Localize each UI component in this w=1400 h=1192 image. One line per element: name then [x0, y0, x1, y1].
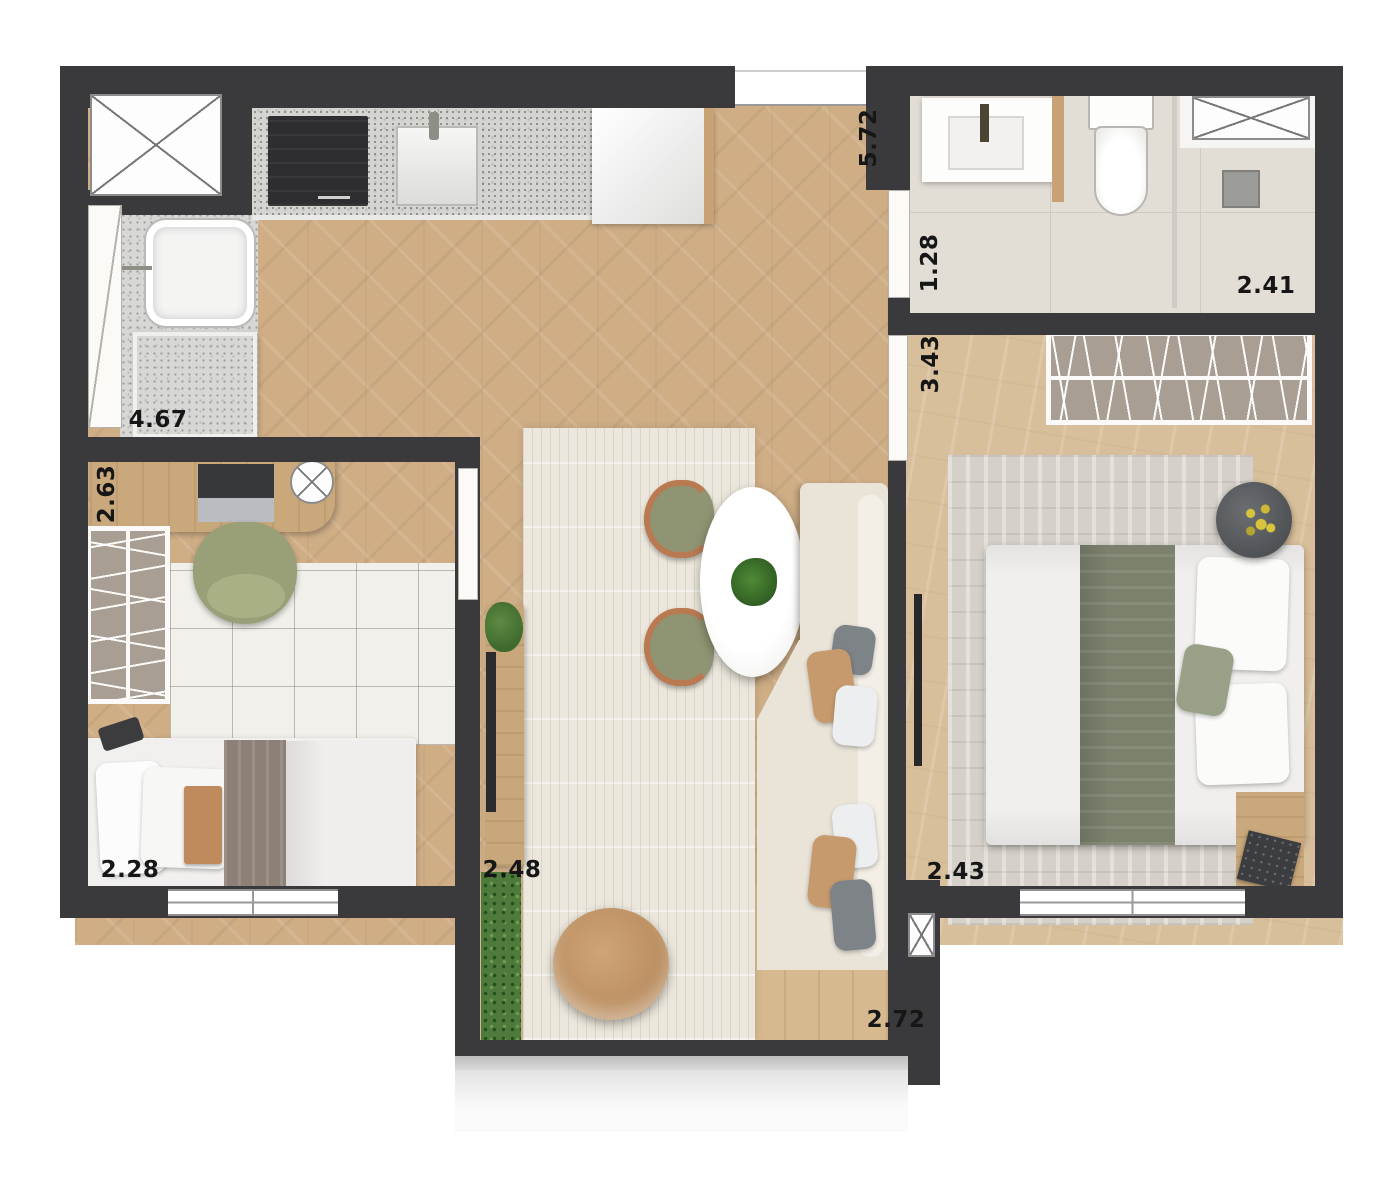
balcony-railing-frame: [478, 1040, 908, 1056]
wall-living-bedroom-partition: [888, 460, 906, 1050]
desk-clock: [290, 460, 334, 504]
wall-office-top: [60, 437, 480, 462]
tv-panel: [914, 594, 922, 766]
dim-label: 3.43: [918, 335, 944, 394]
single-bed-blanket: [224, 740, 286, 892]
console-plant: [485, 602, 523, 652]
dim-label: 1.28: [917, 234, 943, 293]
shower-glass-divider: [1172, 96, 1177, 308]
dim-label: 2.41: [1237, 273, 1296, 299]
dim-label: 2.43: [927, 859, 986, 885]
fridge: [592, 108, 714, 224]
wall-bath-bedroom-divider: [888, 313, 1343, 335]
laundry-sink: [146, 220, 254, 326]
shower-window: [1192, 96, 1310, 140]
wall-right: [1315, 66, 1343, 918]
balcony-pouf: [553, 908, 669, 1020]
balcony-slab: [455, 1070, 908, 1132]
wall-balcony-left-post: [455, 880, 480, 1065]
bedroom-door: [888, 335, 908, 461]
single-bed-duvet: [286, 741, 414, 891]
laptop-keyboard: [198, 498, 274, 522]
shaft-window-balcony: [908, 913, 935, 957]
dim-label: 5.72: [856, 109, 882, 168]
floor-plan: 5.72 1.28 2.41 3.43 4.67 2.63 2.28 2.48 …: [0, 0, 1400, 1192]
bedside-flowers: [1238, 498, 1280, 542]
dim-label: 2.48: [483, 857, 542, 883]
window-bedroom: [1020, 889, 1245, 916]
cooktop-handle: [318, 196, 350, 199]
tv-on-console: [486, 652, 496, 812]
entry-door: [88, 205, 122, 428]
dim-label: 2.72: [867, 1007, 926, 1033]
vanity-side-panel: [1052, 96, 1064, 202]
wall-balcony-right-post: [905, 880, 940, 1085]
wall-shaft-right: [222, 94, 252, 200]
cooktop: [268, 116, 368, 206]
balcony-railing-glass: [455, 1056, 908, 1070]
wall-top-bathroom: [900, 66, 1343, 96]
table-centerpiece-plant: [731, 558, 777, 606]
laptop: [198, 464, 274, 498]
shaft-window-top-left: [90, 94, 222, 196]
bedroom-wardrobe: [1046, 331, 1312, 425]
window-office: [168, 889, 338, 916]
balcony-planter-grass: [481, 872, 521, 1048]
single-bed-tan-throw: [184, 786, 222, 864]
bathroom-door: [888, 190, 910, 298]
toilet-tank: [1088, 90, 1154, 130]
sofa-pillow-gray-2: [829, 878, 877, 951]
dim-label: 2.63: [94, 465, 120, 524]
wall-left: [60, 66, 88, 918]
vanity-faucet: [980, 104, 989, 142]
laundry-faucet: [122, 266, 152, 270]
sofa-pillow-white: [831, 684, 878, 747]
window-top-kitchen: [735, 70, 867, 106]
dim-label: 4.67: [129, 407, 188, 433]
shower-drain: [1222, 170, 1260, 208]
office-door: [458, 468, 478, 600]
office-chair-seat: [207, 574, 285, 618]
kitchen-faucet: [429, 112, 439, 140]
toilet-bowl: [1094, 126, 1148, 216]
office-wardrobe: [86, 526, 170, 704]
master-bed-runner: [1080, 545, 1175, 845]
dim-label: 2.28: [101, 857, 160, 883]
